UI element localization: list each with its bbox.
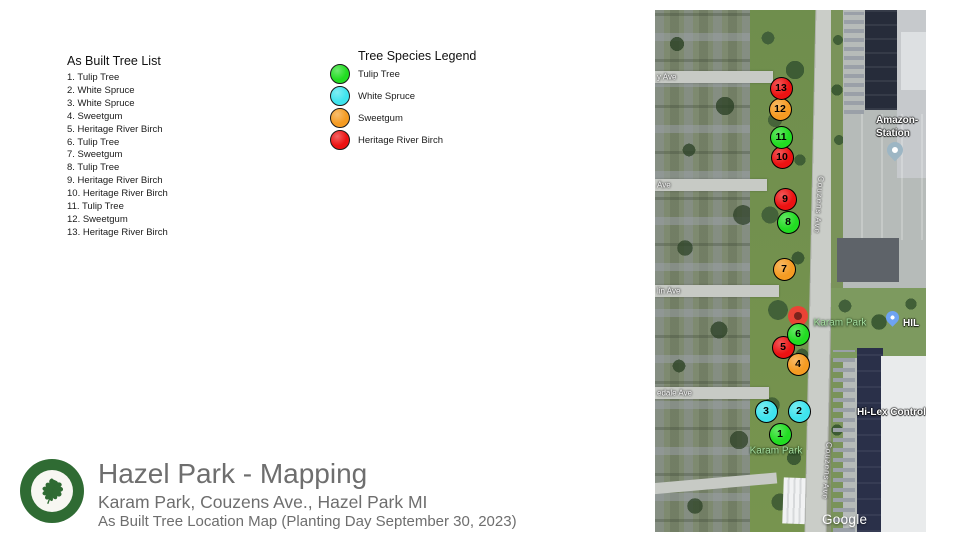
legend-entry: White Spruce — [330, 86, 476, 106]
tree-marker-12: 12 — [769, 98, 792, 121]
legend-entries: Tulip TreeWhite SpruceSweetgumHeritage R… — [330, 64, 476, 150]
tree-list-item: 12. Sweetgum — [67, 214, 168, 227]
map-street-2 — [655, 179, 767, 191]
page-subtitle: Karam Park, Couzens Ave., Hazel Park MI — [98, 492, 427, 513]
hazel-park-logo — [20, 459, 84, 523]
legend-title: Tree Species Legend — [358, 49, 476, 64]
tree-list-item: 11. Tulip Tree — [67, 201, 168, 214]
tree-list-item: 6. Tulip Tree — [67, 137, 168, 150]
oak-leaf-icon — [35, 474, 69, 508]
species-color-dot — [330, 64, 350, 84]
map-parking-row-bottom — [833, 350, 855, 532]
tree-list-items: 1. Tulip Tree2. White Spruce3. White Spr… — [67, 72, 168, 240]
legend-entry: Heritage River Birch — [330, 130, 476, 150]
species-label: Tulip Tree — [358, 69, 400, 80]
google-watermark: Google — [822, 512, 867, 527]
hi-lex-pin-label: HIL — [903, 317, 919, 330]
tree-marker-9: 9 — [774, 188, 797, 211]
street-name-label: y Ave — [657, 73, 676, 82]
map-building-top-right — [865, 10, 897, 110]
tree-list-item: 4. Sweetgum — [67, 111, 168, 124]
tree-marker-2: 2 — [788, 400, 811, 423]
tree-marker-11: 11 — [770, 126, 793, 149]
page-description: As Built Tree Location Map (Planting Day… — [98, 513, 517, 530]
species-color-dot — [330, 86, 350, 106]
tree-list-panel: As Built Tree List 1. Tulip Tree2. White… — [67, 54, 168, 240]
tree-list-item: 10. Heritage River Birch — [67, 188, 168, 201]
species-label: White Spruce — [358, 91, 415, 102]
map-parking-row-top — [844, 12, 864, 114]
tree-marker-1: 1 — [769, 423, 792, 446]
amazon-station-label-line2: Station — [876, 127, 918, 140]
legend-entry: Sweetgum — [330, 108, 476, 128]
tree-list-item: 13. Heritage River Birch — [67, 227, 168, 240]
map-building-bottom-navy — [857, 348, 883, 532]
species-label: Heritage River Birch — [358, 135, 443, 146]
tree-marker-7: 7 — [773, 258, 796, 281]
tree-list-item: 8. Tulip Tree — [67, 162, 168, 175]
tree-marker-13: 13 — [770, 77, 793, 100]
amazon-station-label: Amazon- Station — [876, 114, 918, 140]
street-name-label: lin Ave — [657, 287, 680, 296]
tree-list-item: 7. Sweetgum — [67, 149, 168, 162]
tree-list-item: 9. Heritage River Birch — [67, 175, 168, 188]
satellite-map: y AveAvelin Aveedale Ave Couzens AveCouz… — [655, 10, 926, 532]
amazon-station-label-line1: Amazon- — [876, 114, 918, 127]
hi-lex-building-label: Hi-Lex Control — [857, 406, 926, 419]
tree-marker-6: 6 — [787, 323, 810, 346]
species-color-dot — [330, 130, 350, 150]
legend-entry: Tulip Tree — [330, 64, 476, 84]
footer: Hazel Park - Mapping Karam Park, Couzens… — [0, 452, 640, 540]
logo-inner-disc — [31, 470, 73, 512]
tree-list-item: 3. White Spruce — [67, 98, 168, 111]
tree-list-item: 2. White Spruce — [67, 85, 168, 98]
tree-marker-8: 8 — [777, 211, 800, 234]
map-roof-top-right — [901, 32, 926, 90]
species-label: Sweetgum — [358, 113, 403, 124]
tree-marker-3: 3 — [755, 400, 778, 423]
page-title: Hazel Park - Mapping — [98, 458, 367, 490]
map-building-mid — [837, 238, 899, 282]
tree-marker-10: 10 — [771, 146, 794, 169]
species-color-dot — [330, 108, 350, 128]
tree-list-item: 1. Tulip Tree — [67, 72, 168, 85]
street-name-label: edale Ave — [657, 389, 692, 398]
map-building-bottom-white — [881, 356, 926, 532]
karam-park-label: Karam Park — [750, 446, 803, 457]
tree-list-item: 5. Heritage River Birch — [67, 124, 168, 137]
karam-park-label: Karam Park — [814, 318, 867, 329]
tree-list-title: As Built Tree List — [67, 54, 168, 69]
species-legend-panel: Tree Species Legend Tulip TreeWhite Spru… — [330, 49, 476, 152]
street-name-label: Ave — [657, 181, 671, 190]
